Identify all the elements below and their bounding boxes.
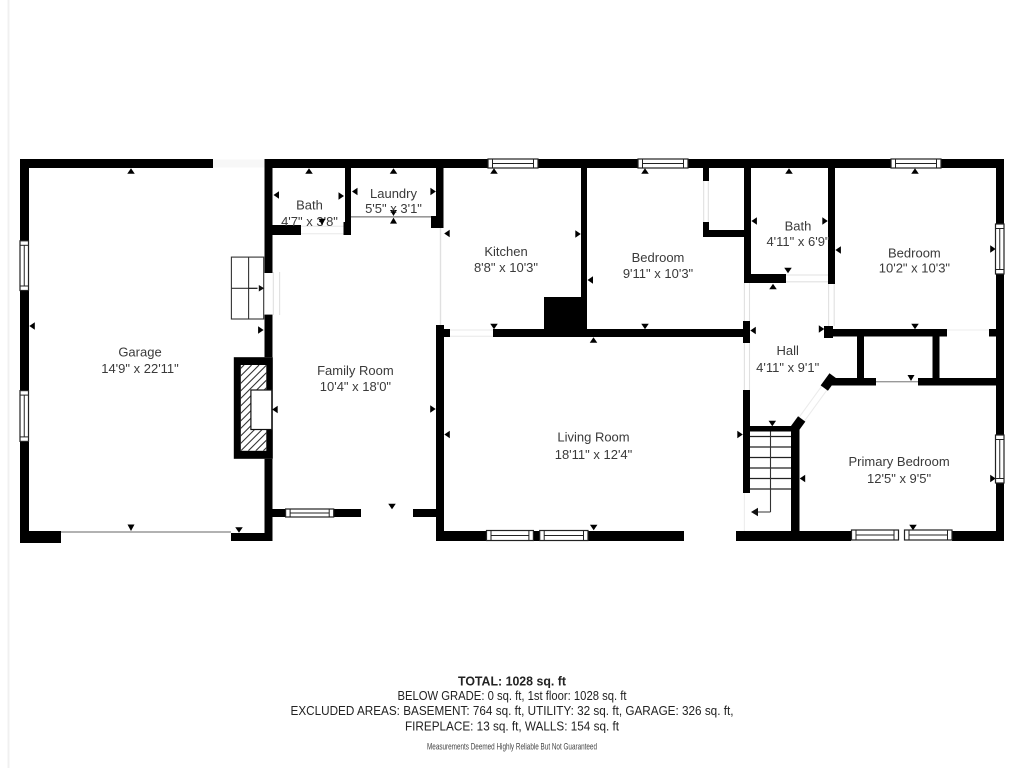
svg-text:Hall: Hall xyxy=(776,343,799,358)
svg-text:8'8" x 10'3": 8'8" x 10'3" xyxy=(474,260,538,275)
svg-text:TOTAL: 1028 sq. ft: TOTAL: 1028 sq. ft xyxy=(458,674,567,689)
svg-text:18'11" x 12'4": 18'11" x 12'4" xyxy=(555,447,633,462)
svg-text:4'11" x 6'9": 4'11" x 6'9" xyxy=(766,234,829,249)
svg-text:5'5" x 3'1": 5'5" x 3'1" xyxy=(365,201,422,216)
svg-text:10'2" x 10'3": 10'2" x 10'3" xyxy=(879,260,951,275)
svg-text:Laundry: Laundry xyxy=(370,186,417,201)
svg-text:4'11" x 9'1": 4'11" x 9'1" xyxy=(756,360,819,375)
svg-text:Garage: Garage xyxy=(118,344,161,359)
svg-text:Bath: Bath xyxy=(296,197,323,212)
svg-text:EXCLUDED AREAS: BASEMENT: 764: EXCLUDED AREAS: BASEMENT: 764 sq. ft, UT… xyxy=(291,703,734,718)
svg-text:BELOW GRADE: 0 sq. ft, 1st flo: BELOW GRADE: 0 sq. ft, 1st floor: 1028 s… xyxy=(398,688,627,703)
svg-text:Family Room: Family Room xyxy=(317,363,394,378)
svg-text:10'4" x 18'0": 10'4" x 18'0" xyxy=(320,379,392,394)
svg-text:Bedroom: Bedroom xyxy=(888,245,941,260)
svg-text:Measurements Deemed Highly Rel: Measurements Deemed Highly Reliable But … xyxy=(427,742,597,753)
svg-text:Bedroom: Bedroom xyxy=(632,250,685,265)
svg-text:14'9" x 22'11": 14'9" x 22'11" xyxy=(101,361,179,376)
svg-text:9'11" x 10'3": 9'11" x 10'3" xyxy=(623,266,694,281)
svg-text:Kitchen: Kitchen xyxy=(484,244,527,259)
svg-text:Living Room: Living Room xyxy=(557,430,629,445)
svg-text:FIREPLACE: 13 sq. ft, WALLS: 1: FIREPLACE: 13 sq. ft, WALLS: 154 sq. ft xyxy=(405,719,619,734)
svg-text:4'7" x 3'8": 4'7" x 3'8" xyxy=(281,214,338,229)
svg-text:Primary Bedroom: Primary Bedroom xyxy=(849,454,950,469)
svg-text:12'5" x 9'5": 12'5" x 9'5" xyxy=(867,471,931,486)
svg-text:Bath: Bath xyxy=(785,218,812,233)
